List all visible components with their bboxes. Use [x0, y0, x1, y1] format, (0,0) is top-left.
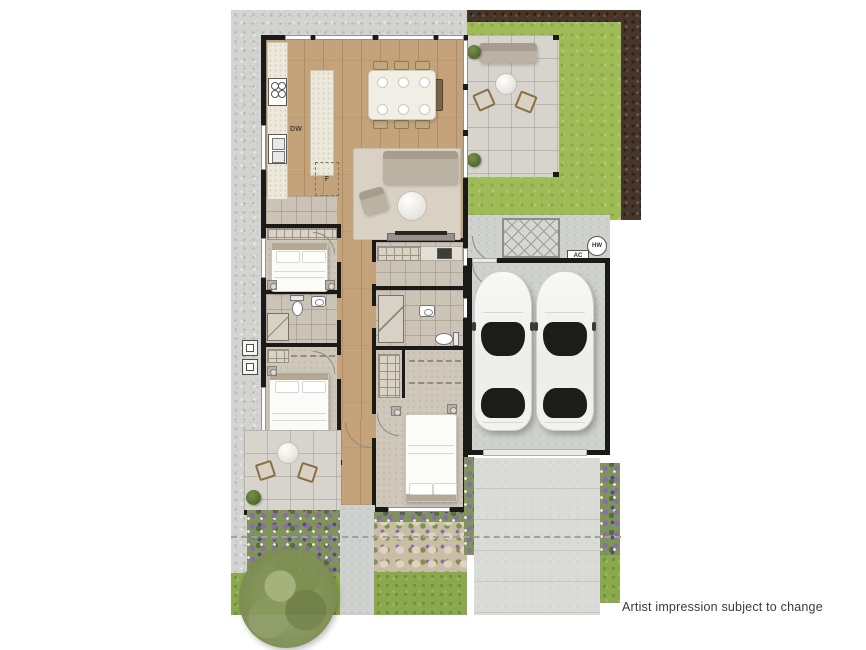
bed-icon — [405, 414, 457, 502]
disclaimer-text: Artist impression subject to change — [622, 600, 823, 614]
basin-icon — [311, 296, 326, 307]
alfresco-post — [553, 172, 559, 177]
dining-chair — [394, 120, 409, 129]
dining-chair — [373, 61, 388, 70]
door-opening — [372, 306, 376, 328]
window — [315, 35, 373, 40]
garden-bush — [467, 45, 481, 59]
fridge-space: F — [315, 162, 339, 196]
door-opening — [337, 238, 341, 262]
dishwasher-label: DW — [290, 126, 302, 133]
outdoor-chair — [514, 90, 537, 113]
utility-meter-box — [242, 359, 258, 375]
laundry-sink-icon — [437, 248, 452, 259]
cooktop-icon — [268, 78, 287, 106]
wardrobe-rail — [409, 382, 461, 384]
toilet-icon — [292, 301, 303, 316]
tv-icon — [395, 231, 447, 235]
coffee-table — [397, 191, 427, 221]
garden-bush — [246, 490, 261, 505]
utility-meter-box — [242, 340, 258, 356]
alfresco-paving — [465, 35, 559, 177]
basin-icon — [419, 305, 435, 317]
window — [438, 35, 464, 40]
dining-chair — [373, 120, 388, 129]
front-lawn — [600, 555, 620, 603]
wall — [376, 286, 463, 290]
side-table — [447, 404, 457, 414]
wall — [605, 258, 610, 455]
toilet-icon — [453, 332, 459, 346]
door-opening — [337, 355, 341, 379]
sliding-door — [463, 40, 468, 178]
fridge-label: F — [325, 176, 329, 183]
car-icon — [537, 272, 593, 430]
garage-door — [483, 449, 587, 456]
robe-shelves — [378, 354, 400, 398]
alfresco-post — [553, 35, 559, 40]
laundry-floor — [266, 196, 337, 224]
hot-water-unit: HW — [587, 236, 607, 256]
dining-chair — [415, 120, 430, 129]
porch-paving — [244, 430, 341, 515]
shower-icon — [267, 313, 289, 341]
mulch-bed-top — [467, 10, 641, 22]
side-table — [267, 366, 277, 376]
window — [378, 35, 434, 40]
flower-strip — [600, 463, 620, 555]
window — [261, 125, 266, 170]
door-opening — [372, 262, 376, 284]
flower-strip — [464, 457, 474, 555]
wardrobe-rail — [409, 360, 461, 362]
car-icon — [475, 272, 531, 430]
site-plan: AC HW DW — [231, 10, 641, 615]
dining-chair — [394, 61, 409, 70]
garden-bush — [467, 153, 481, 167]
front-path — [340, 505, 375, 615]
sofa-icon — [383, 151, 458, 184]
sink-icon — [268, 134, 287, 164]
dining-chair — [415, 61, 430, 70]
kitchen-island — [310, 70, 334, 176]
wall — [587, 450, 610, 455]
mulch-bed-right — [621, 10, 641, 220]
wall — [467, 450, 483, 455]
porch-table — [277, 442, 299, 464]
outdoor-sofa — [479, 43, 537, 63]
wardrobe-shelves — [267, 349, 289, 363]
outdoor-chair — [472, 88, 496, 112]
door-mullion — [463, 130, 468, 136]
side-table — [325, 280, 335, 290]
shower-icon — [378, 295, 404, 343]
front-lawn — [374, 572, 467, 615]
toilet-icon — [435, 333, 453, 345]
porch-chair — [297, 462, 318, 483]
door-opening — [337, 298, 341, 320]
side-table — [267, 280, 277, 290]
window — [261, 238, 266, 278]
flower-strip — [374, 512, 467, 522]
outdoor-coffee-table — [495, 73, 517, 95]
wall — [266, 343, 341, 347]
porch-chair — [255, 460, 276, 481]
kitchen-counter — [267, 42, 288, 200]
laundry-cabinets — [377, 246, 421, 261]
wall — [467, 258, 472, 455]
hw-label: HW — [592, 243, 602, 249]
tree-icon — [239, 548, 337, 648]
wall — [372, 346, 468, 350]
boundary-dashed-line — [231, 536, 621, 538]
clothesline-icon — [502, 218, 560, 258]
robe-divider — [402, 350, 405, 398]
dining-table — [368, 70, 436, 120]
floor-plan-page: AC HW DW — [0, 0, 866, 650]
window — [285, 35, 311, 40]
door-mullion — [463, 84, 468, 90]
wall — [497, 258, 610, 263]
door-opening — [372, 414, 376, 438]
